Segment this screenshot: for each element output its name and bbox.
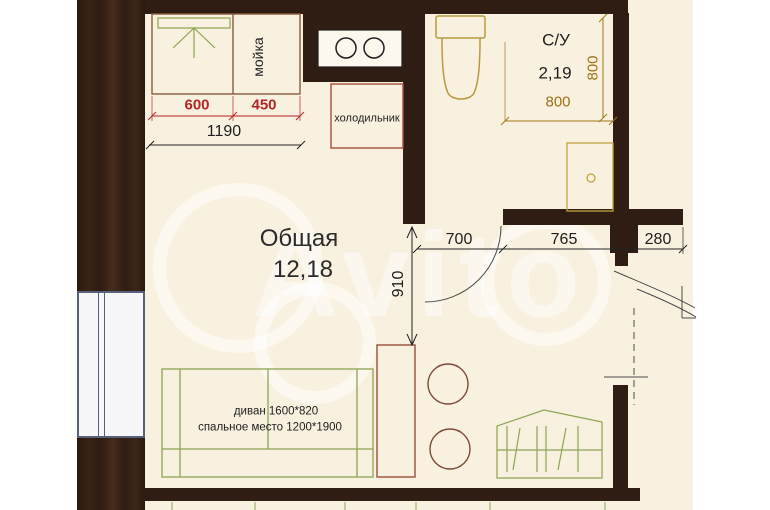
floor-plan: Avito	[0, 0, 770, 510]
living-room-area: 12,18	[273, 258, 333, 282]
dim-depth: 910	[391, 271, 407, 298]
bathroom-label: С/У	[542, 32, 570, 49]
bathroom-area: 2,19	[538, 65, 571, 82]
fridge-label: холодильник	[334, 114, 399, 125]
dim-cabinet-left: 600	[184, 98, 209, 113]
dim-cabinet-right: 450	[251, 98, 276, 113]
stools	[428, 364, 470, 469]
table-outline	[377, 345, 415, 477]
balcony-rail	[172, 502, 605, 510]
kitchen-cabinet	[152, 14, 300, 94]
dim-line-cabinet	[148, 96, 304, 121]
stove-icon	[318, 30, 402, 67]
entry-door-arc	[637, 289, 696, 317]
sink-label: мойка	[251, 37, 265, 76]
dim-opening: 700	[446, 232, 473, 248]
shower-tray-icon	[567, 143, 613, 211]
dim-shower-height: 800	[586, 55, 601, 80]
dim-line-kitchen-total	[146, 141, 305, 149]
dim-shower-width: 800	[545, 95, 570, 110]
dim-hall: 765	[551, 232, 578, 248]
sofa-label-line1: диван 1600*820	[234, 406, 318, 418]
sofa-label-line2: спальное место 1200*1900	[198, 422, 342, 434]
wardrobe-icon	[497, 410, 602, 478]
dim-entry: 280	[645, 232, 672, 248]
cabinet-dryer-icon	[158, 18, 230, 58]
living-room-label: Общая	[260, 227, 339, 251]
dim-line-depth	[407, 227, 417, 345]
shower-drain-icon	[587, 174, 595, 182]
plan-graphics	[0, 0, 770, 510]
dim-kitchen-total: 1190	[207, 124, 241, 140]
door-arcs	[425, 226, 696, 405]
entry-door-arc	[614, 271, 695, 308]
toilet-icon	[436, 16, 485, 99]
